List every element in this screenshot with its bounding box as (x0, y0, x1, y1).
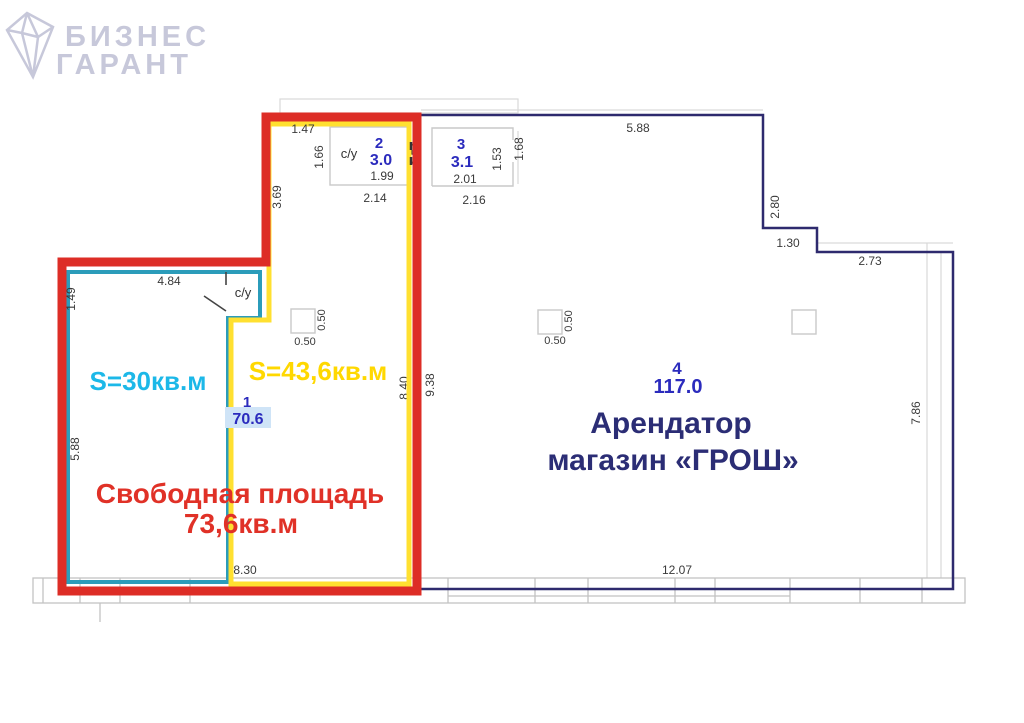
diamond-logo-icon (7, 13, 53, 77)
dimension-label: 4.84 (157, 274, 181, 288)
room1-number: 1 (243, 394, 251, 411)
pillar-1 (291, 309, 315, 333)
door-leaf-left-su (204, 296, 226, 311)
dimension-label: 2.14 (363, 191, 387, 205)
floorplan-page: 1.54 8.40 1.47 1.66 1.99 2.14 3.69 2.01 … (0, 0, 1024, 723)
tenant-label-line1: Арендатор (590, 407, 751, 440)
logo-text-line2: ГАРАНТ (56, 49, 192, 81)
room1-area: 70.6 (232, 411, 263, 428)
room4-area: 117.0 (654, 376, 703, 398)
pillar-3 (792, 310, 816, 334)
dimension-label: 0.50 (563, 310, 575, 331)
dimension-label: 1.68 (512, 137, 526, 161)
dimension-label: 2.16 (462, 193, 486, 207)
tenant-label-line2: магазин «ГРОШ» (547, 444, 798, 477)
bottom-window-dividers (43, 578, 922, 622)
dimension-label: 2.01 (453, 172, 477, 186)
dimension-label: 1.30 (776, 236, 800, 250)
dimension-label: 0.50 (544, 335, 565, 347)
top-window-strip (280, 99, 518, 113)
dimension-label: 7.86 (909, 401, 923, 425)
dimension-label: 2.73 (858, 254, 882, 268)
dimension-label: 1.66 (312, 145, 326, 169)
room2-number: 2 (375, 135, 383, 152)
business-garant-logo: БИЗНЕС ГАРАНТ (7, 13, 210, 81)
unit-30-area-label: S=30кв.м (90, 366, 207, 396)
unit-43-area-label: S=43,6кв.м (249, 356, 388, 386)
dimension-label: 0.50 (294, 336, 315, 348)
free-area-label-line1: Свободная площадь (96, 478, 385, 509)
pillar-2 (538, 310, 562, 334)
dimension-label: 9.38 (423, 373, 437, 397)
dimension-label: 12.07 (662, 563, 692, 577)
room3-number: 3 (457, 136, 465, 153)
window-wall-lines (33, 99, 965, 622)
dimension-label: 1.99 (370, 169, 394, 183)
dimension-label: 3.69 (270, 185, 284, 209)
dimension-label: 5.88 (626, 121, 650, 135)
floorplan-drawing: 1.54 8.40 1.47 1.66 1.99 2.14 3.69 2.01 … (0, 0, 1024, 723)
dimension-label: 5.88 (68, 437, 82, 461)
dimension-label: 1.47 (291, 122, 315, 136)
dimension-label: 8.30 (233, 563, 257, 577)
room2-su-label: с/у (341, 146, 358, 161)
left-su-label: с/у (235, 285, 252, 300)
dimension-label: 1.53 (490, 147, 504, 171)
room3-area: 3.1 (451, 154, 473, 171)
free-area-label-line2: 73,6кв.м (184, 508, 298, 539)
dimension-label: 2.80 (768, 195, 782, 219)
dimension-label: 1.49 (64, 287, 78, 311)
room2-area: 3.0 (370, 152, 392, 169)
dimension-label: 0.50 (316, 309, 328, 330)
